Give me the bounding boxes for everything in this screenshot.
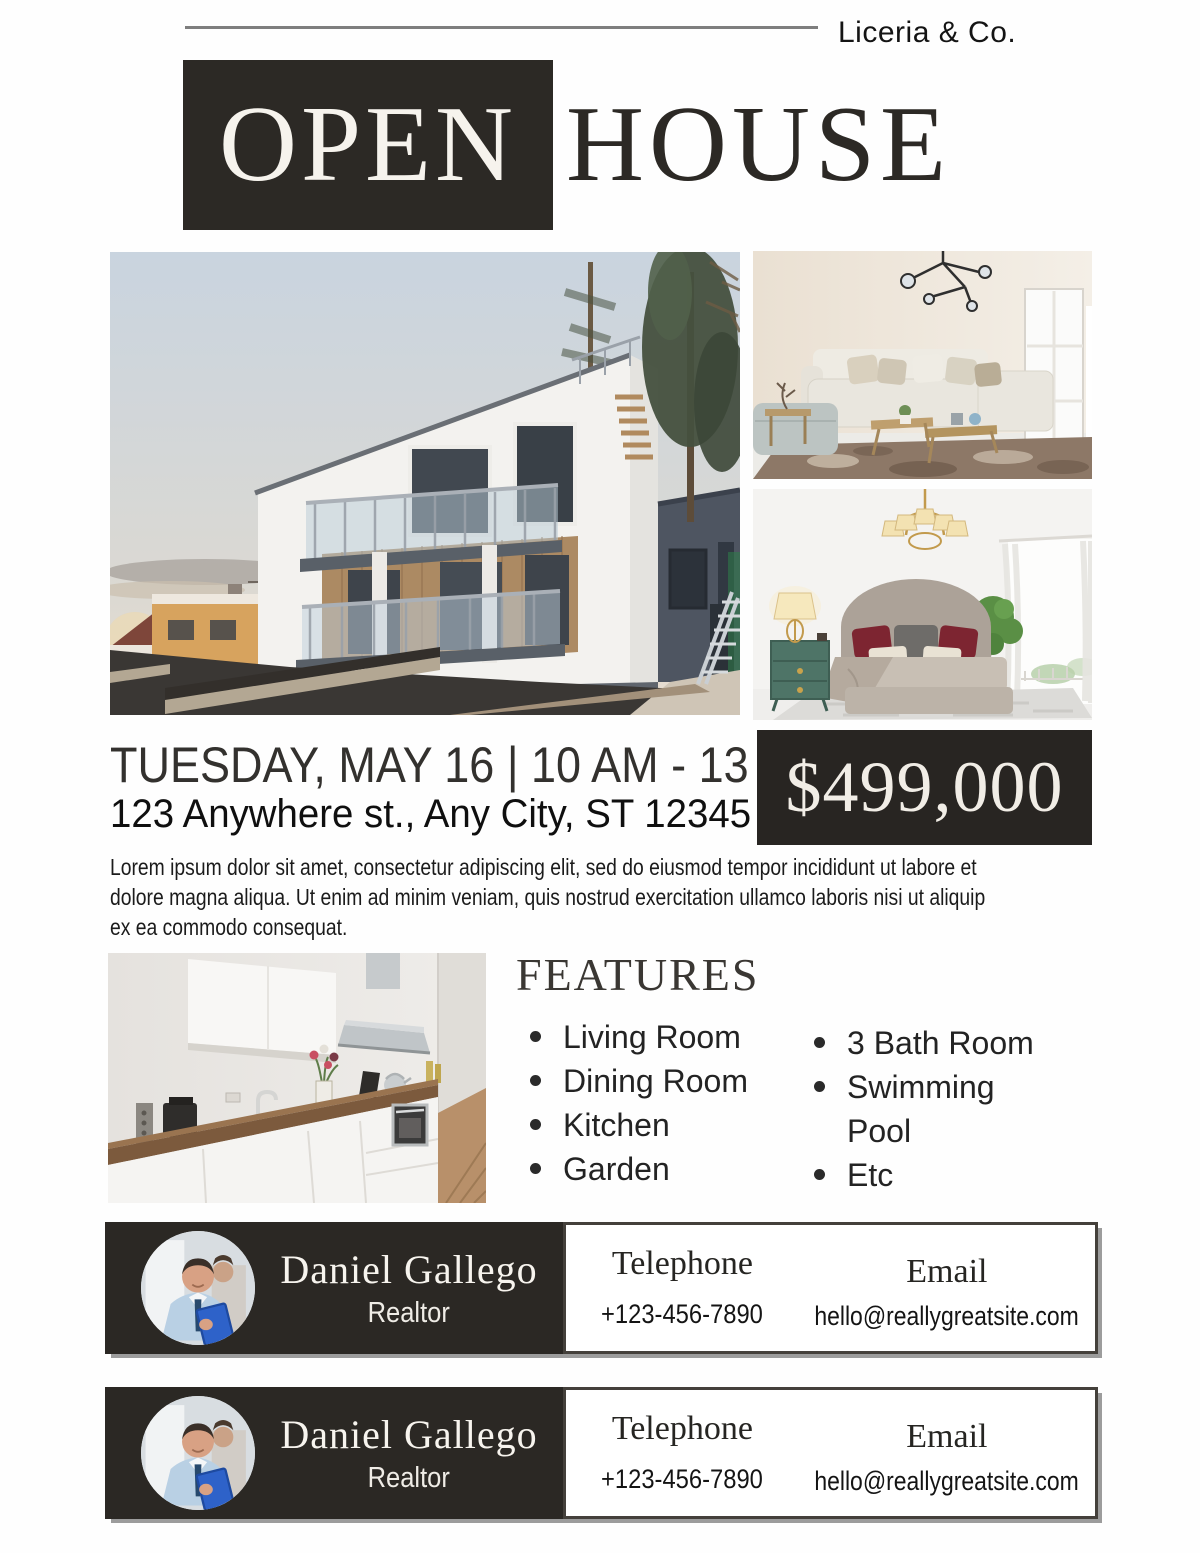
email-block: Email hello@reallygreatsite.com <box>799 1225 1095 1351</box>
feature-item: Swimming Pool <box>800 1065 1040 1153</box>
telephone-value: +123-456-7890 <box>590 1464 774 1495</box>
feature-item: 3 Bath Room <box>800 1021 1040 1065</box>
bullet-icon <box>814 1169 825 1180</box>
telephone-value: +123-456-7890 <box>590 1299 774 1330</box>
bullet-icon <box>530 1031 541 1042</box>
bullet-icon <box>530 1075 541 1086</box>
open-title: OPEN <box>219 91 517 199</box>
features-list-left: Living Room Dining Room Kitchen Garden <box>516 1015 761 1191</box>
features-heading: FEATURES <box>516 948 759 1001</box>
agent-contact-panel: Telephone +123-456-7890 Email hello@real… <box>563 1387 1098 1519</box>
feature-item: Dining Room <box>516 1059 761 1103</box>
agent-name: Daniel Gallego <box>255 1246 563 1293</box>
telephone-label: Telephone <box>612 1245 753 1283</box>
agent-card: Daniel Gallego Realtor Telephone +123-45… <box>105 1387 1098 1519</box>
bullet-icon <box>530 1163 541 1174</box>
telephone-label: Telephone <box>612 1410 753 1448</box>
event-address: 123 Anywhere st., Any City, ST 12345 <box>110 792 778 837</box>
agent-card-dark-panel: Daniel Gallego Realtor <box>105 1222 563 1354</box>
bullet-icon <box>814 1081 825 1092</box>
kitchen-photo <box>108 953 486 1203</box>
bullet-icon <box>814 1037 825 1048</box>
feature-item: Etc <box>800 1153 1040 1197</box>
email-label: Email <box>906 1253 987 1291</box>
feature-item: Kitchen <box>516 1103 761 1147</box>
description: Lorem ipsum dolor sit amet, consectetur … <box>110 852 1152 942</box>
email-block: Email hello@reallygreatsite.com <box>799 1390 1095 1516</box>
agent-card-dark-panel: Daniel Gallego Realtor <box>105 1387 563 1519</box>
agent-identity: Daniel Gallego Realtor <box>255 1246 563 1330</box>
features-list-right: 3 Bath Room Swimming Pool Etc <box>800 1021 1040 1197</box>
email-value: hello@reallygreatsite.com <box>791 1301 1102 1332</box>
agent-role: Realtor <box>255 1462 563 1495</box>
agent-photo <box>141 1231 255 1345</box>
telephone-block: Telephone +123-456-7890 <box>566 1390 799 1516</box>
house-title: HOUSE <box>566 60 951 230</box>
agent-role: Realtor <box>255 1297 563 1330</box>
house-exterior-photo <box>110 252 740 715</box>
agent-photo <box>141 1396 255 1510</box>
telephone-block: Telephone +123-456-7890 <box>566 1225 799 1351</box>
realtor-portrait <box>141 1231 255 1345</box>
bedroom-photo <box>753 489 1092 720</box>
realtor-portrait <box>141 1396 255 1510</box>
bullet-icon <box>530 1119 541 1130</box>
header-rule <box>185 26 818 29</box>
agent-identity: Daniel Gallego Realtor <box>255 1411 563 1495</box>
feature-item: Living Room <box>516 1015 761 1059</box>
agent-contact-panel: Telephone +123-456-7890 Email hello@real… <box>563 1222 1098 1354</box>
flyer-page: Liceria & Co. OPEN HOUSE <box>0 0 1200 1553</box>
agent-name: Daniel Gallego <box>255 1411 563 1458</box>
agent-card: Daniel Gallego Realtor Telephone +123-45… <box>105 1222 1098 1354</box>
brand-text: Liceria & Co. <box>838 16 1016 50</box>
feature-item: Garden <box>516 1147 761 1191</box>
open-title-box: OPEN <box>183 60 553 230</box>
price-badge: $499,000 <box>757 730 1092 845</box>
email-value: hello@reallygreatsite.com <box>791 1466 1102 1497</box>
price-text: $499,000 <box>786 746 1064 829</box>
living-room-photo <box>753 251 1092 479</box>
email-label: Email <box>906 1418 987 1456</box>
